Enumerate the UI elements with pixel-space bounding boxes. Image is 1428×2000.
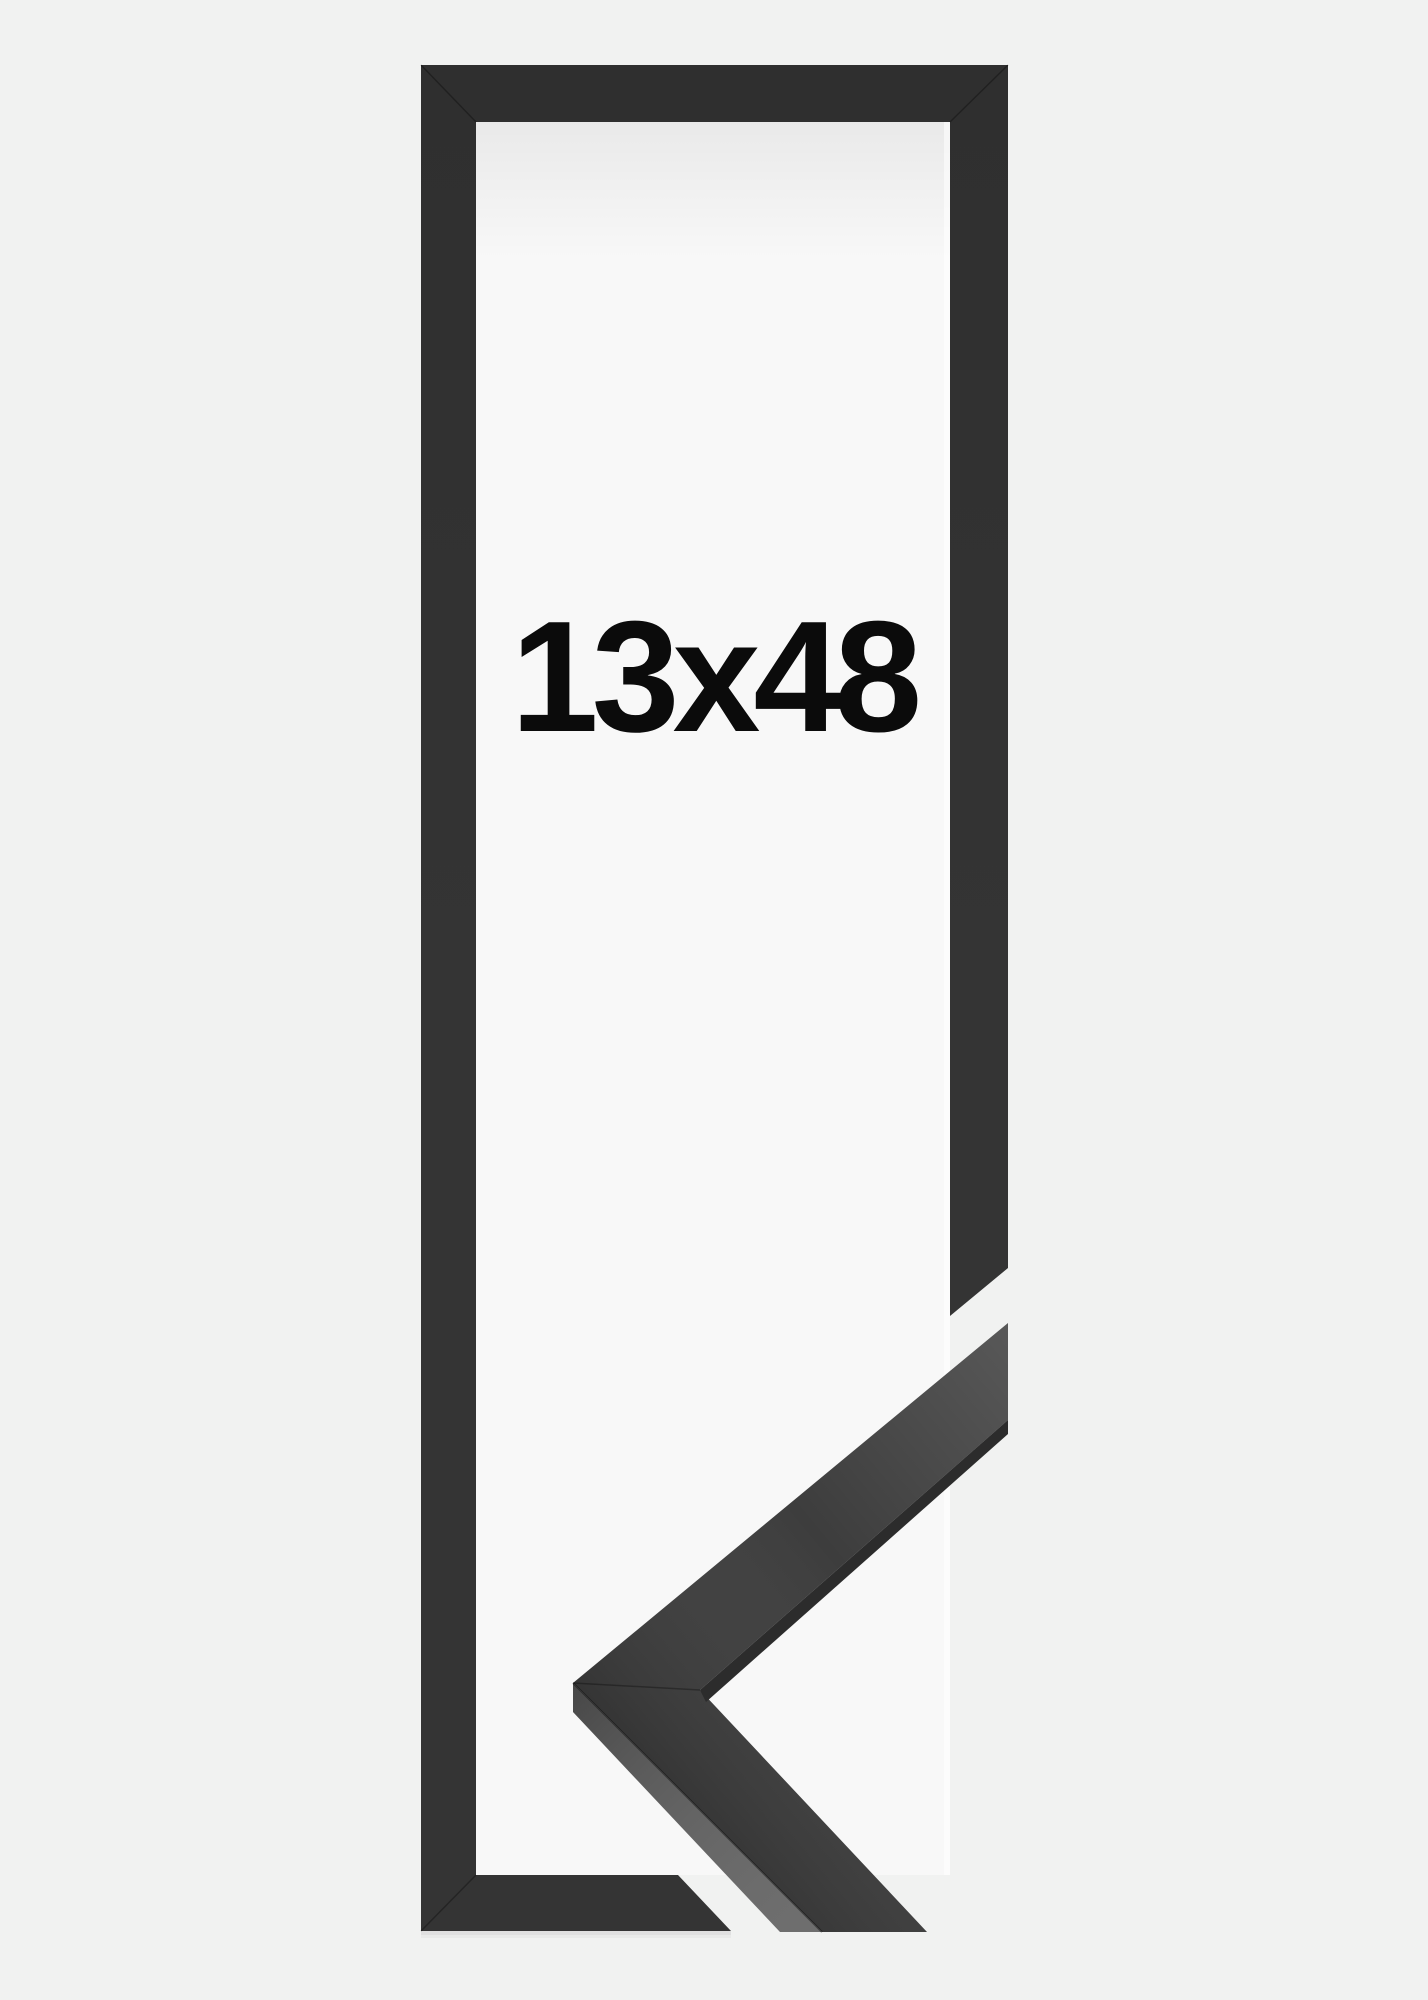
frame-drop-shadow [421, 1931, 731, 1935]
frame-graphic [0, 0, 1428, 2000]
size-label: 13x48 [476, 598, 950, 756]
frame-drop-shadow-soft [421, 1935, 731, 1938]
product-photo: 13x48 [0, 0, 1428, 2000]
paper-edge-highlight [944, 122, 950, 1875]
frame-opening-shadow [476, 122, 950, 262]
